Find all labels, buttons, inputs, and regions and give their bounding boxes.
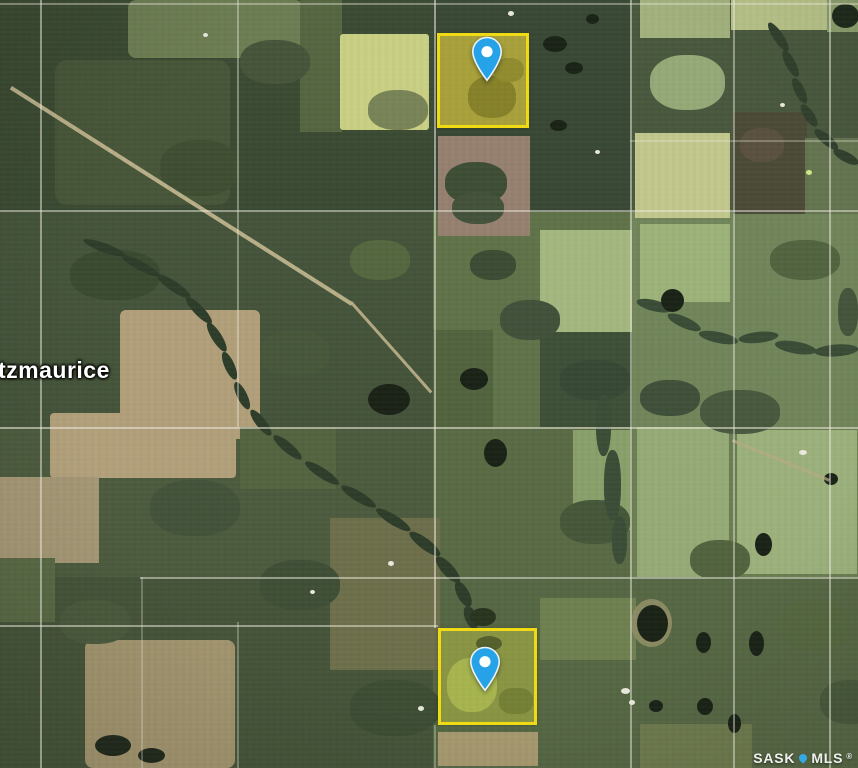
satellite-map[interactable]: tzmaurice SASK MLS ® [0, 0, 858, 768]
registered-trademark-symbol: ® [846, 750, 853, 764]
watermark-sask-text: SASK [753, 750, 795, 766]
watermark-mls-text: MLS [811, 750, 843, 766]
pin-layer [0, 0, 858, 768]
sask-mls-watermark: SASK MLS ® [753, 750, 853, 766]
mls-pin-icon [798, 752, 809, 763]
map-pin-icon[interactable] [469, 646, 501, 692]
map-pin-icon[interactable] [471, 36, 503, 82]
